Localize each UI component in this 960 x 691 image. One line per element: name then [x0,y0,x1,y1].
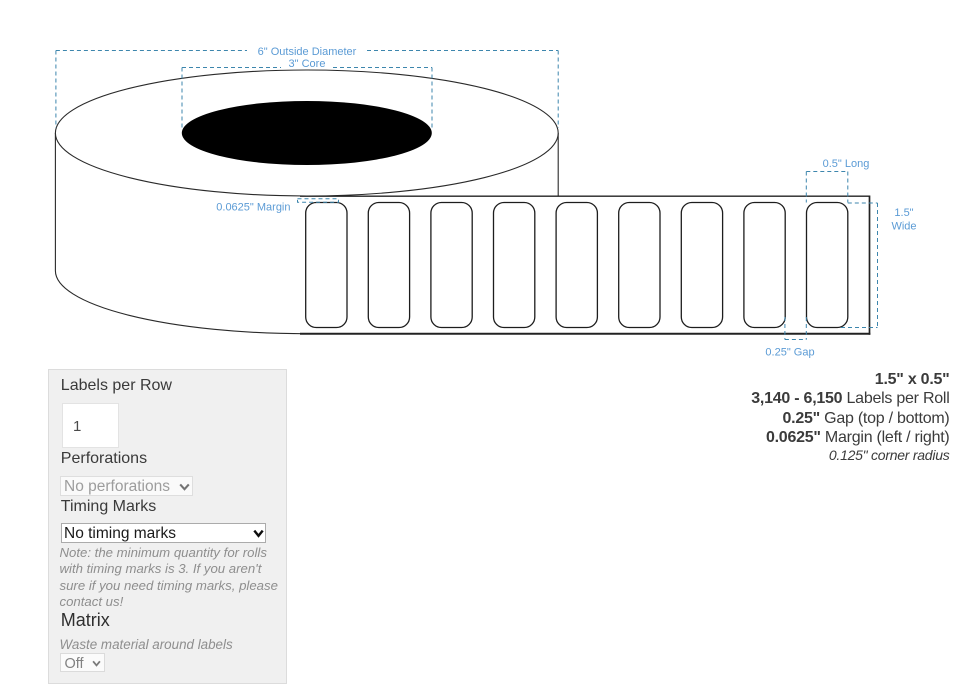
svg-text:0.0625" Margin: 0.0625" Margin [216,202,290,214]
svg-text:0.5" Long: 0.5" Long [823,158,870,170]
svg-text:Wide: Wide [891,221,916,233]
svg-text:0.25" Gap: 0.25" Gap [765,347,814,359]
svg-text:6" Outside Diameter: 6" Outside Diameter [258,46,357,58]
svg-text:1.5": 1.5" [894,207,913,219]
svg-text:3" Core: 3" Core [289,58,326,70]
